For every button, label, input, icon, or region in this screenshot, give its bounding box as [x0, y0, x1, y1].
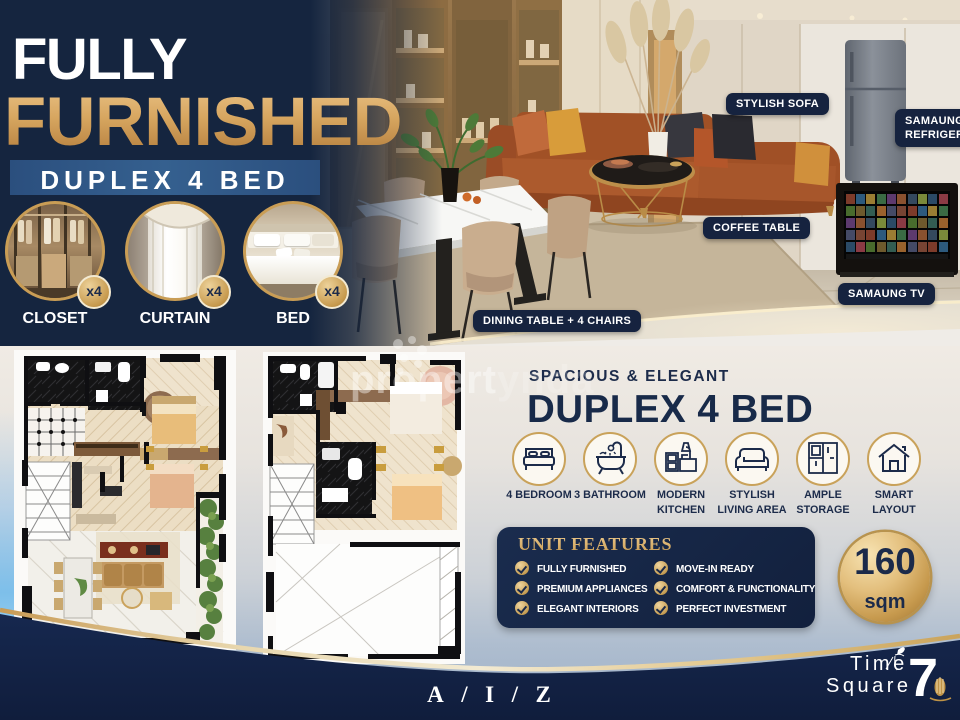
svg-text:4 BEDROOM: 4 BEDROOM	[506, 489, 571, 501]
svg-text:STORAGE: STORAGE	[796, 504, 849, 516]
svg-text:MODERN: MODERN	[657, 489, 705, 501]
svg-text:3 BATHROOM: 3 BATHROOM	[574, 489, 646, 501]
svg-text:AMPLE: AMPLE	[804, 489, 842, 501]
svg-text:Square: Square	[826, 675, 912, 697]
svg-text:KITCHEN: KITCHEN	[657, 504, 705, 516]
svg-text:STYLISH: STYLISH	[729, 489, 775, 501]
svg-text:SMART: SMART	[875, 489, 914, 501]
svg-text:LIVING AREA: LIVING AREA	[717, 504, 786, 516]
svg-text:LAYOUT: LAYOUT	[872, 504, 916, 516]
svg-text:Time: Time	[850, 653, 908, 675]
